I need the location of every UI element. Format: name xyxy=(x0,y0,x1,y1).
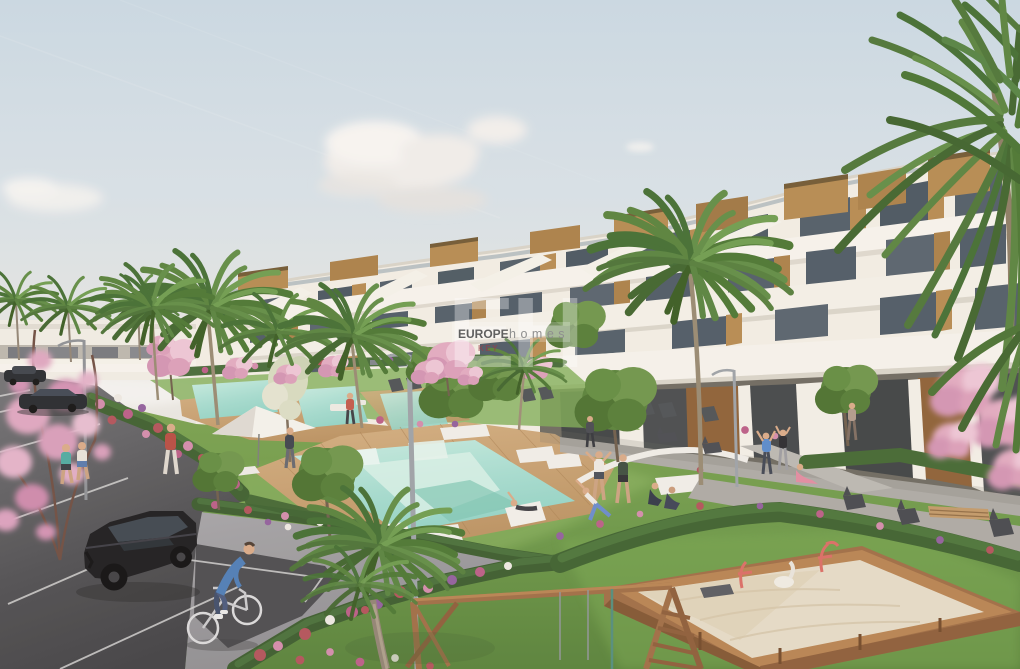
svg-text:EUROPE: EUROPE xyxy=(458,327,509,341)
svg-text:KEY: KEY xyxy=(478,344,499,353)
svg-text:homes: homes xyxy=(509,327,569,341)
